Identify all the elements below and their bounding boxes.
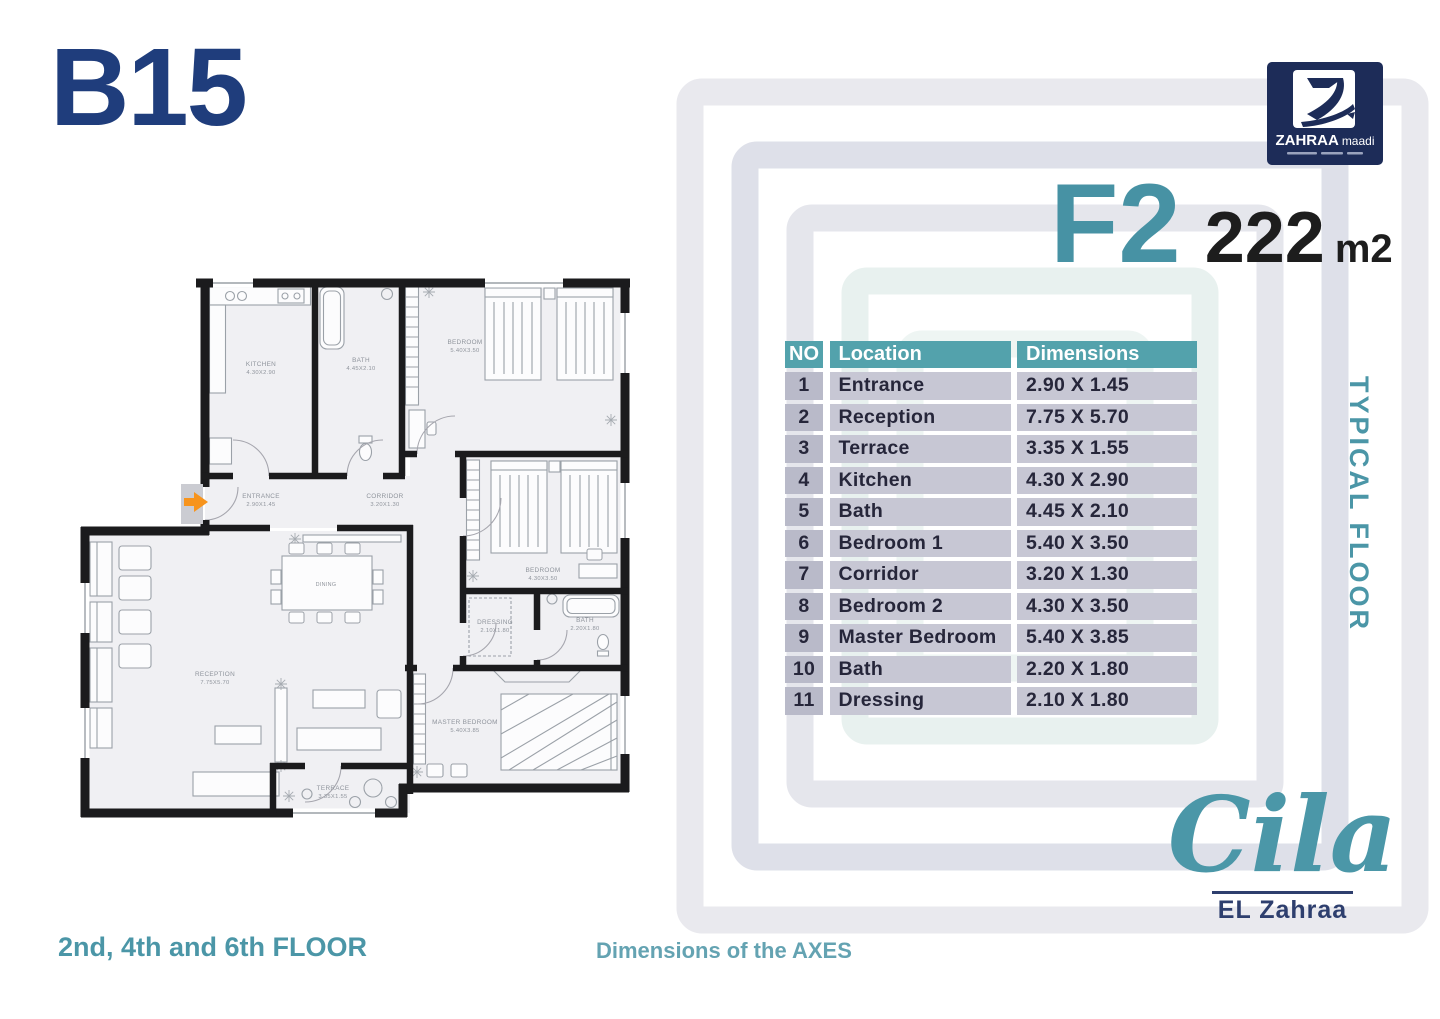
row-dimensions: 4.30 X 3.50 <box>1017 593 1197 621</box>
row-location: Bedroom 1 <box>830 530 1011 558</box>
header-dimensions: Dimensions <box>1017 341 1197 368</box>
header-no: NO <box>785 341 823 368</box>
dimensions-table: NO Location Dimensions 1 Entrance 2.90 X… <box>785 341 1197 719</box>
typical-floor-label: TYPICAL FLOOR <box>1343 376 1374 632</box>
table-row: 7 Corridor 3.20 X 1.30 <box>785 561 1197 589</box>
table-row: 6 Bedroom 1 5.40 X 3.50 <box>785 530 1197 558</box>
row-no: 2 <box>785 404 823 432</box>
row-no: 6 <box>785 530 823 558</box>
project-logo: Cila EL Zahraa <box>1140 780 1425 925</box>
area-value: 222 <box>1205 202 1325 274</box>
row-dimensions: 3.20 X 1.30 <box>1017 561 1197 589</box>
brand-name-text: ZAHRAAmaadi <box>1275 132 1374 149</box>
row-dimensions: 5.40 X 3.50 <box>1017 530 1197 558</box>
row-location: Reception <box>830 404 1011 432</box>
table-row: 1 Entrance 2.90 X 1.45 <box>785 372 1197 400</box>
row-location: Bedroom 2 <box>830 593 1011 621</box>
table-row: 4 Kitchen 4.30 X 2.90 <box>785 467 1197 495</box>
row-location: Terrace <box>830 435 1011 463</box>
table-row: 3 Terrace 3.35 X 1.55 <box>785 435 1197 463</box>
axes-note: Dimensions of the AXES <box>596 938 852 964</box>
row-no: 8 <box>785 593 823 621</box>
row-no: 4 <box>785 467 823 495</box>
row-no: 10 <box>785 656 823 684</box>
table-row: 5 Bath 4.45 X 2.10 <box>785 498 1197 526</box>
floor-plan: KITCHEN4.30X2.90 BATH4.45X2.10 BEDROOM5.… <box>65 258 645 838</box>
row-dimensions: 7.75 X 5.70 <box>1017 404 1197 432</box>
row-no: 1 <box>785 372 823 400</box>
row-dimensions: 2.90 X 1.45 <box>1017 372 1197 400</box>
table-row: 2 Reception 7.75 X 5.70 <box>785 404 1197 432</box>
row-no: 3 <box>785 435 823 463</box>
row-location: Entrance <box>830 372 1011 400</box>
row-no: 11 <box>785 687 823 715</box>
svg-text:DINING: DINING <box>316 582 337 588</box>
row-location: Corridor <box>830 561 1011 589</box>
row-location: Dressing <box>830 687 1011 715</box>
table-row: 9 Master Bedroom 5.40 X 3.85 <box>785 624 1197 652</box>
row-dimensions: 4.30 X 2.90 <box>1017 467 1197 495</box>
row-dimensions: 4.45 X 2.10 <box>1017 498 1197 526</box>
row-dimensions: 2.20 X 1.80 <box>1017 656 1197 684</box>
table-row: 8 Bedroom 2 4.30 X 3.50 <box>785 593 1197 621</box>
header-location: Location <box>830 341 1011 368</box>
row-location: Bath <box>830 656 1011 684</box>
row-no: 9 <box>785 624 823 652</box>
zahraa-maadi-logo: ZAHRAAmaadi <box>1267 62 1383 165</box>
model-code: F2 <box>1050 168 1181 280</box>
table-row: 10 Bath 2.20 X 1.80 <box>785 656 1197 684</box>
row-location: Kitchen <box>830 467 1011 495</box>
row-no: 5 <box>785 498 823 526</box>
table-header-row: NO Location Dimensions <box>785 341 1197 368</box>
table-row: 11 Dressing 2.10 X 1.80 <box>785 687 1197 715</box>
project-script-name: Cila <box>1140 780 1425 889</box>
floors-note: 2nd, 4th and 6th FLOOR <box>58 932 367 963</box>
row-dimensions: 5.40 X 3.85 <box>1017 624 1197 652</box>
model-area-row: F2 222 m2 <box>1050 168 1393 280</box>
row-dimensions: 2.10 X 1.80 <box>1017 687 1197 715</box>
brand-tagline-marks <box>1287 152 1363 155</box>
row-no: 7 <box>785 561 823 589</box>
row-dimensions: 3.35 X 1.55 <box>1017 435 1197 463</box>
area-unit: m2 <box>1335 227 1393 272</box>
project-sub-name: EL Zahraa <box>1212 891 1353 925</box>
unit-code: B15 <box>50 24 246 151</box>
brochure-page: B15 <box>0 0 1440 1019</box>
area-group: 222 m2 <box>1205 202 1393 274</box>
row-location: Bath <box>830 498 1011 526</box>
row-location: Master Bedroom <box>830 624 1011 652</box>
